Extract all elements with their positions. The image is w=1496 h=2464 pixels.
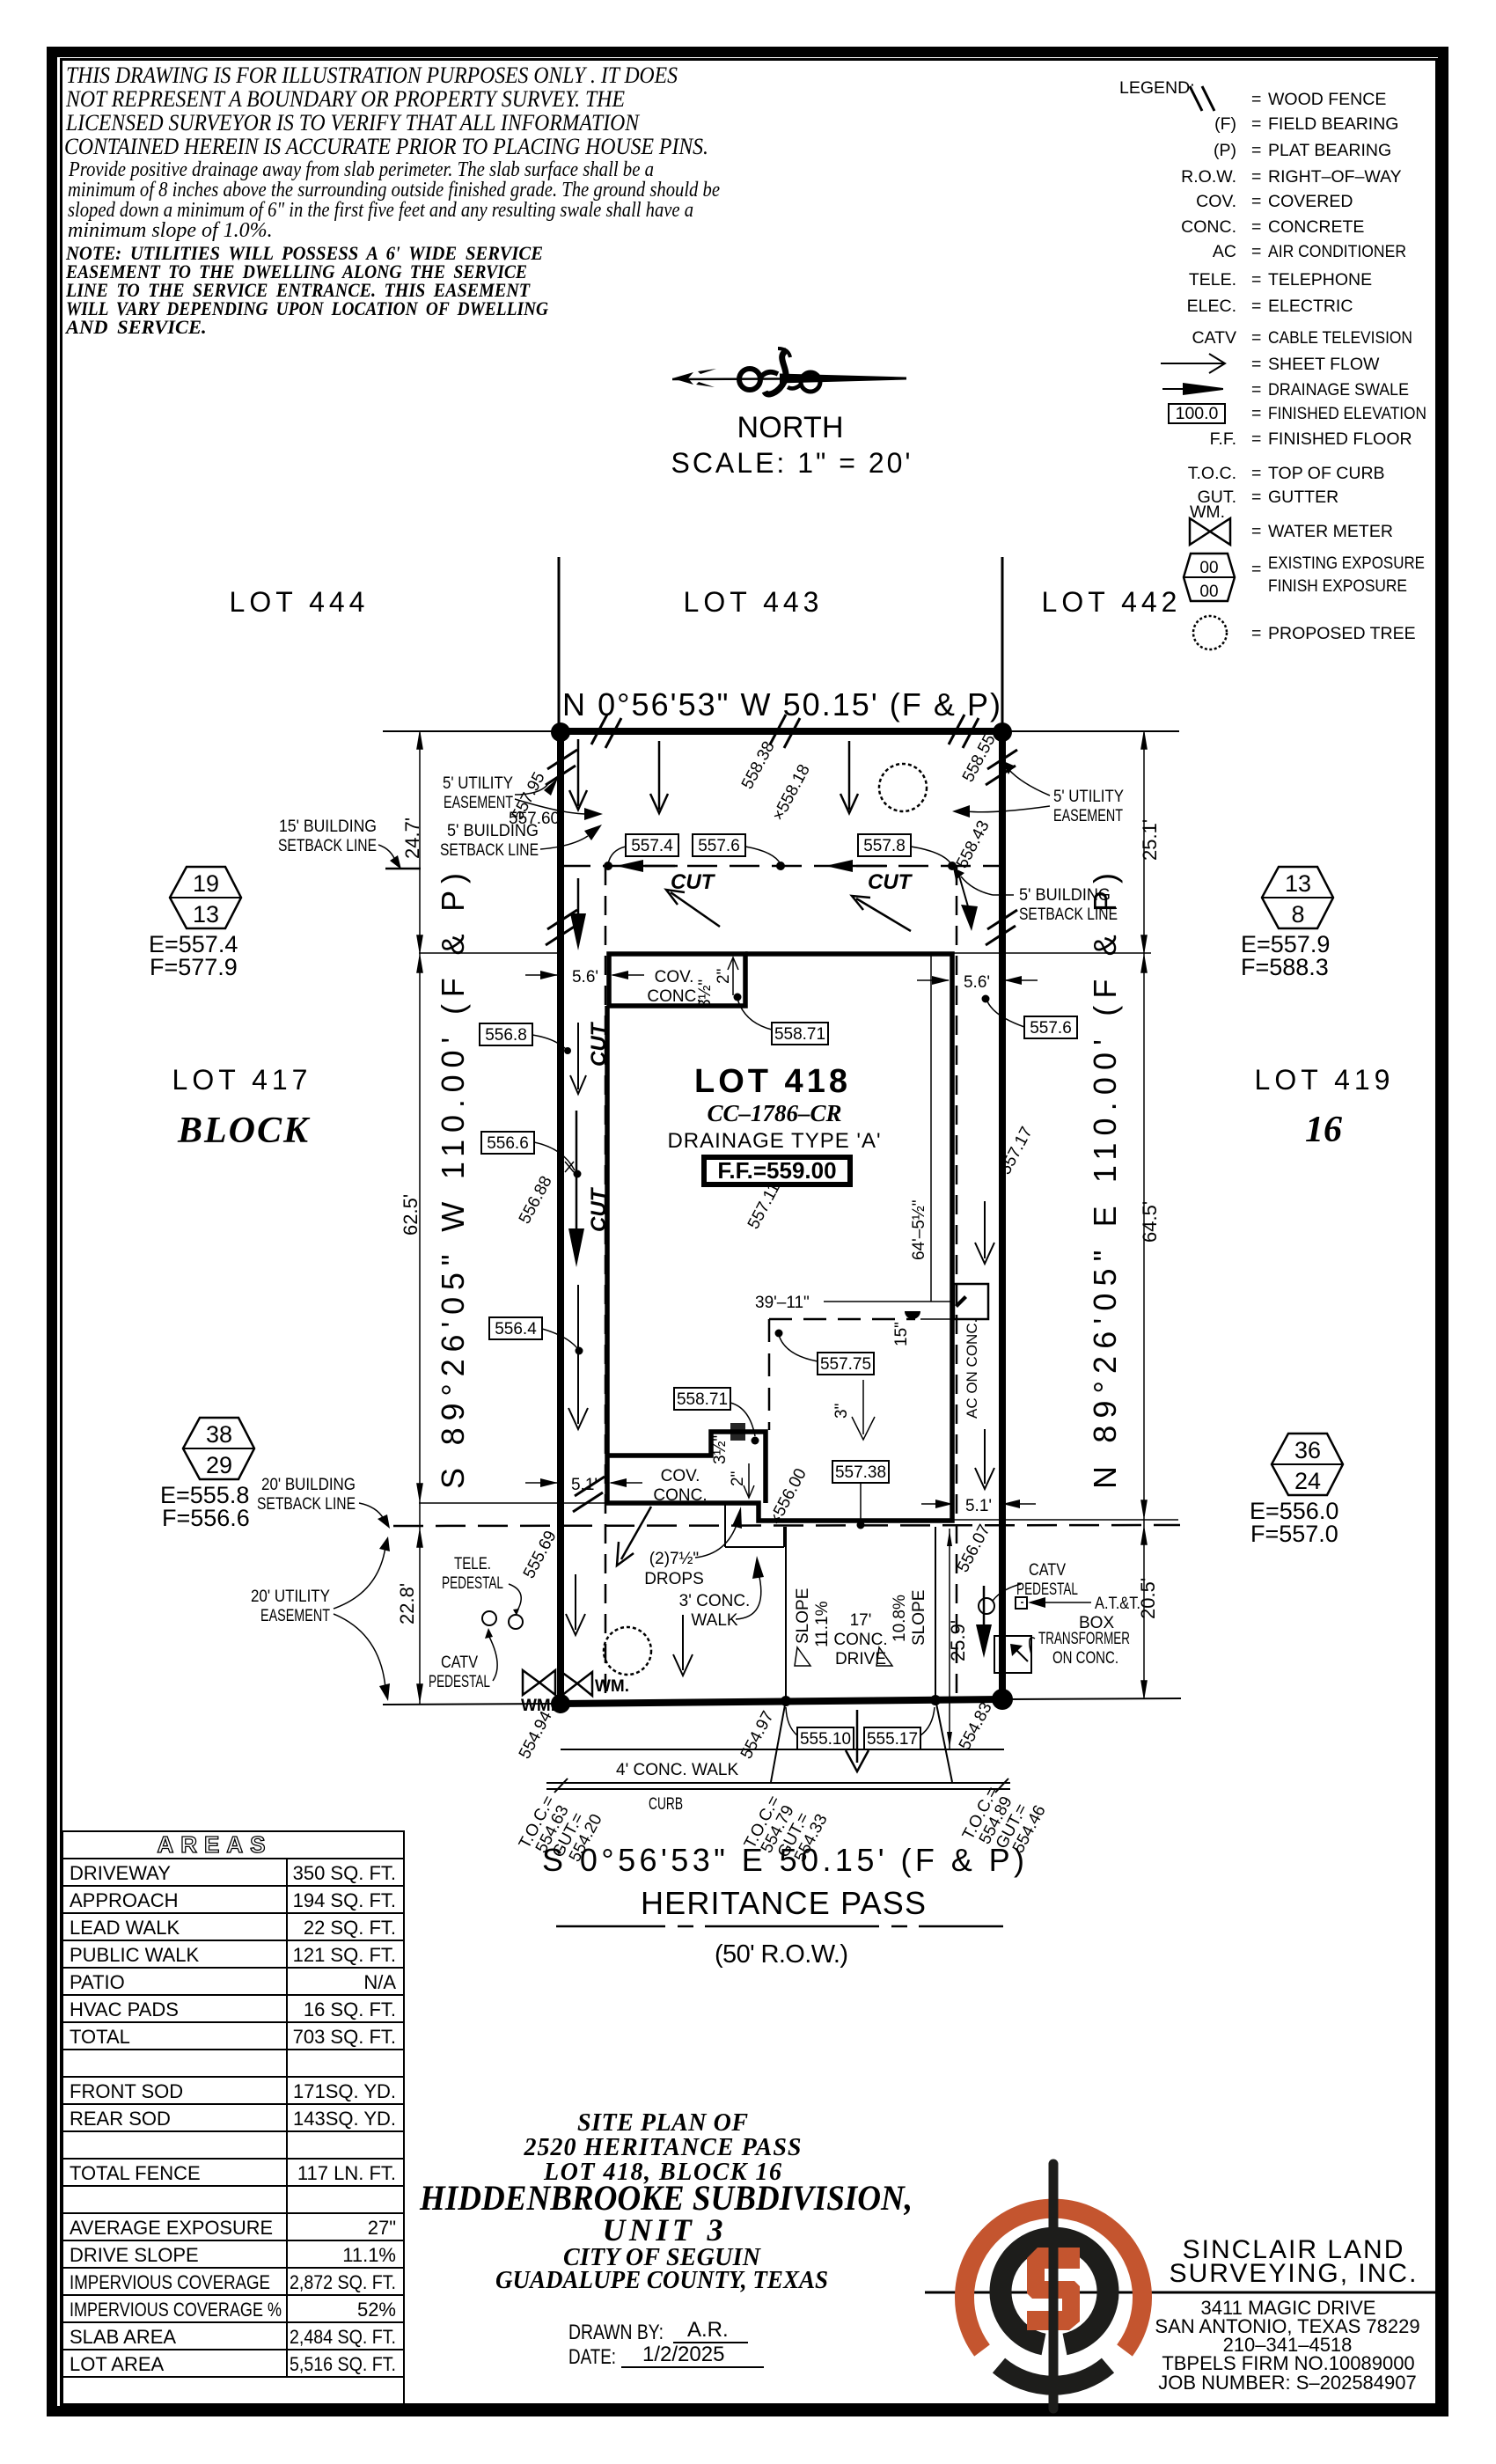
svg-text:FINISHED ELEVATION: FINISHED ELEVATION	[1268, 404, 1426, 423]
svg-text:556.4: 556.4	[495, 1320, 537, 1338]
svg-text:5' BUILDING: 5' BUILDING	[447, 822, 539, 840]
svg-text:TOP OF CURB: TOP OF CURB	[1268, 464, 1385, 483]
svg-text:ELEC.: ELEC.	[1187, 297, 1236, 316]
svg-text:3½": 3½"	[696, 979, 715, 1008]
svg-text:2,872 SQ. FT.: 2,872 SQ. FT.	[290, 2271, 396, 2293]
svg-text:SLAB AREA: SLAB AREA	[70, 2326, 176, 2348]
svg-text:DRIVEWAY: DRIVEWAY	[70, 1862, 171, 1884]
svg-text:COV.: COV.	[661, 1467, 700, 1485]
svg-text:2": 2"	[729, 1471, 747, 1486]
svg-text:SITE PLAN OF: SITE PLAN OF	[577, 2109, 748, 2137]
svg-text:39'–11": 39'–11"	[755, 1294, 810, 1312]
svg-text:IMPERVIOUS COVERAGE: IMPERVIOUS COVERAGE	[70, 2271, 270, 2293]
svg-text:CURB: CURB	[649, 1795, 683, 1814]
svg-text:SETBACK LINE: SETBACK LINE	[440, 841, 539, 860]
svg-text:29: 29	[206, 1452, 232, 1478]
svg-text:NOT REPRESENT A BOUNDARY OR PR: NOT REPRESENT A BOUNDARY OR PROPERTY SUR…	[65, 86, 625, 112]
svg-text:SETBACK LINE: SETBACK LINE	[257, 1495, 356, 1514]
svg-text:PLAT BEARING: PLAT BEARING	[1268, 141, 1391, 160]
svg-text:CATV: CATV	[1029, 1561, 1066, 1580]
svg-text:1/2/2025: 1/2/2025	[642, 2343, 724, 2366]
svg-text:3": 3"	[832, 1404, 851, 1419]
svg-text:HERITANCE PASS: HERITANCE PASS	[641, 1885, 926, 1921]
svg-text:13: 13	[193, 901, 219, 928]
svg-text:64'–5½": 64'–5½"	[910, 1200, 928, 1261]
svg-text:=: =	[1251, 328, 1261, 348]
svg-text:=: =	[1251, 270, 1261, 290]
svg-text:350 SQ. FT.: 350 SQ. FT.	[293, 1862, 396, 1884]
svg-text:17': 17'	[850, 1611, 872, 1630]
svg-text:GUTTER: GUTTER	[1268, 488, 1338, 507]
svg-text:LOT 419: LOT 419	[1255, 1064, 1395, 1096]
svg-text:100.0: 100.0	[1176, 404, 1219, 423]
svg-text:=: =	[1251, 560, 1261, 579]
svg-text:AVERAGE EXPOSURE: AVERAGE EXPOSURE	[70, 2217, 273, 2239]
svg-text:CONC.: CONC.	[653, 1486, 707, 1505]
svg-text:3' CONC.: 3' CONC.	[679, 1592, 751, 1610]
svg-text:WM.: WM.	[1190, 502, 1225, 522]
svg-text:DROPS: DROPS	[644, 1570, 704, 1588]
svg-text:5.6': 5.6'	[964, 973, 990, 992]
svg-text:=: =	[1251, 217, 1261, 237]
svg-text:DATE:: DATE:	[568, 2345, 616, 2369]
svg-text:AC: AC	[1213, 242, 1236, 261]
svg-text:CATV: CATV	[441, 1654, 478, 1672]
svg-text:5' UTILITY: 5' UTILITY	[443, 774, 513, 793]
svg-text:PATIO: PATIO	[70, 1971, 125, 1993]
svg-text:CUT: CUT	[587, 1021, 611, 1067]
svg-text:EASEMENT: EASEMENT	[444, 794, 513, 812]
svg-text:PEDESTAL: PEDESTAL	[442, 1574, 503, 1593]
svg-text:APPROACH: APPROACH	[70, 1889, 178, 1911]
svg-text:4' CONC. WALK: 4' CONC. WALK	[616, 1761, 738, 1779]
svg-text:F.F.: F.F.	[1210, 429, 1236, 449]
svg-text:=: =	[1251, 355, 1261, 374]
svg-text:16: 16	[1305, 1110, 1342, 1150]
svg-text:557.6: 557.6	[698, 837, 740, 855]
svg-text:13: 13	[1285, 870, 1311, 897]
svg-text:194 SQ. FT.: 194 SQ. FT.	[293, 1889, 396, 1911]
svg-text:A.R.: A.R.	[687, 2318, 729, 2342]
svg-text:5.1': 5.1'	[965, 1497, 992, 1515]
svg-text:(50' R.O.W.): (50' R.O.W.)	[715, 1940, 848, 1969]
svg-text:=: =	[1251, 242, 1261, 261]
svg-text:24.7': 24.7'	[401, 818, 423, 859]
svg-text:15' BUILDING: 15' BUILDING	[279, 818, 377, 836]
svg-text:WATER METER: WATER METER	[1268, 522, 1393, 541]
svg-text:171SQ. YD.: 171SQ. YD.	[293, 2080, 396, 2102]
svg-text:TELE.: TELE.	[454, 1555, 491, 1573]
svg-text:F=588.3: F=588.3	[1241, 954, 1329, 980]
svg-text:LEGEND:: LEGEND:	[1119, 78, 1195, 98]
svg-text:COV.: COV.	[655, 968, 694, 986]
svg-text:5' UTILITY: 5' UTILITY	[1053, 788, 1124, 806]
svg-text:minimum slope of 1.0%.: minimum slope of 1.0%.	[68, 219, 273, 242]
svg-text:555.17: 555.17	[867, 1730, 918, 1749]
svg-text:(2)7½": (2)7½"	[649, 1550, 699, 1568]
svg-text:38: 38	[206, 1421, 232, 1448]
svg-text:AND SERVICE.: AND SERVICE.	[64, 316, 207, 338]
svg-text:CABLE TELEVISION: CABLE TELEVISION	[1268, 328, 1412, 348]
svg-text:557.4: 557.4	[631, 837, 673, 855]
svg-text:FRONT SOD: FRONT SOD	[70, 2080, 183, 2102]
svg-text:HVAC PADS: HVAC PADS	[70, 1998, 179, 2020]
svg-text:=: =	[1251, 297, 1261, 316]
svg-text:27": 27"	[368, 2217, 396, 2239]
svg-text:FINISH EXPOSURE: FINISH EXPOSURE	[1268, 576, 1407, 596]
svg-text:36: 36	[1294, 1437, 1321, 1463]
svg-text:16 SQ. FT.: 16 SQ. FT.	[304, 1998, 396, 2020]
svg-text:AREAS: AREAS	[157, 1831, 272, 1858]
svg-text:EXISTING EXPOSURE: EXISTING EXPOSURE	[1268, 554, 1425, 573]
svg-text:WOOD FENCE: WOOD FENCE	[1268, 90, 1386, 109]
svg-text:COVERED: COVERED	[1268, 192, 1353, 211]
svg-text:LOT AREA: LOT AREA	[70, 2353, 165, 2375]
svg-text:DRIVE SLOPE: DRIVE SLOPE	[70, 2244, 199, 2266]
svg-text:TELE.: TELE.	[1189, 270, 1236, 290]
svg-text:ON CONC.: ON CONC.	[1052, 1649, 1118, 1668]
svg-text:PUBLIC WALK: PUBLIC WALK	[70, 1944, 199, 1966]
svg-text:CONCRETE: CONCRETE	[1268, 217, 1364, 237]
svg-text:TELEPHONE: TELEPHONE	[1268, 270, 1372, 290]
svg-text:CONTAINED HEREIN IS ACCURATE P: CONTAINED HEREIN IS ACCURATE PRIOR TO PL…	[64, 134, 708, 159]
svg-text:555.10: 555.10	[800, 1730, 851, 1749]
svg-text:CUT: CUT	[587, 1186, 611, 1232]
svg-text:8: 8	[1291, 901, 1304, 928]
svg-text:LOT 417: LOT 417	[172, 1064, 312, 1096]
svg-text:=: =	[1251, 380, 1261, 400]
svg-text:TOTAL FENCE: TOTAL FENCE	[70, 2162, 201, 2184]
svg-text:=: =	[1251, 141, 1261, 160]
svg-text:(P): (P)	[1214, 141, 1236, 160]
svg-text:PEDESTAL: PEDESTAL	[429, 1673, 490, 1691]
svg-text:CC–1786–CR: CC–1786–CR	[707, 1100, 841, 1126]
svg-text:=: =	[1251, 429, 1261, 449]
svg-text:WM.: WM.	[595, 1677, 629, 1696]
svg-text:F.F.=559.00: F.F.=559.00	[717, 1157, 836, 1184]
svg-text:143SQ. YD.: 143SQ. YD.	[293, 2108, 396, 2130]
svg-text:EASEMENT: EASEMENT	[260, 1607, 330, 1625]
svg-text:SETBACK LINE: SETBACK LINE	[278, 837, 377, 855]
svg-text:556.6: 556.6	[487, 1134, 529, 1153]
svg-text:WALK: WALK	[691, 1611, 737, 1630]
svg-text:COV.: COV.	[1196, 192, 1236, 211]
svg-text:20' UTILITY: 20' UTILITY	[251, 1588, 330, 1606]
svg-text:EASEMENT: EASEMENT	[1053, 807, 1123, 825]
svg-text:121 SQ. FT.: 121 SQ. FT.	[293, 1944, 396, 1966]
svg-text:RIGHT–OF–WAY: RIGHT–OF–WAY	[1268, 167, 1402, 187]
svg-text:117 LN. FT.: 117 LN. FT.	[297, 2162, 396, 2184]
svg-text:558.71: 558.71	[677, 1390, 728, 1409]
svg-text:CONC.: CONC.	[833, 1631, 887, 1649]
svg-text:20' BUILDING: 20' BUILDING	[261, 1476, 356, 1494]
svg-text:R.O.W.: R.O.W.	[1181, 167, 1236, 187]
svg-text:24: 24	[1294, 1468, 1321, 1494]
svg-text:LOT 442: LOT 442	[1042, 586, 1182, 618]
svg-text:CUT: CUT	[868, 870, 913, 894]
svg-text:DRAINAGE SWALE: DRAINAGE SWALE	[1268, 380, 1409, 400]
svg-text:THIS DRAWING IS FOR ILLUSTRATI: THIS DRAWING IS FOR ILLUSTRATION PURPOSE…	[66, 62, 678, 88]
svg-text:22.8': 22.8'	[396, 1583, 418, 1624]
svg-text:CATV: CATV	[1192, 328, 1236, 348]
svg-text:64.5': 64.5'	[1139, 1201, 1161, 1243]
svg-text:IMPERVIOUS COVERAGE %: IMPERVIOUS COVERAGE %	[70, 2299, 282, 2321]
svg-text:2520 HERITANCE PASS: 2520 HERITANCE PASS	[524, 2134, 802, 2161]
svg-text:N/A: N/A	[363, 1971, 396, 1993]
svg-text:11.1%: 11.1%	[342, 2244, 396, 2266]
svg-text:5' BUILDING: 5' BUILDING	[1019, 886, 1111, 905]
svg-text:=: =	[1251, 90, 1261, 109]
svg-text:557.6: 557.6	[1030, 1019, 1072, 1038]
svg-text:=: =	[1251, 624, 1261, 643]
svg-text:3½": 3½"	[711, 1435, 730, 1464]
svg-text:F=577.9: F=577.9	[150, 954, 238, 980]
svg-text:22 SQ. FT.: 22 SQ. FT.	[304, 1917, 396, 1939]
svg-text:=: =	[1251, 114, 1261, 134]
svg-text:=: =	[1251, 522, 1261, 541]
svg-text:558.71: 558.71	[774, 1025, 825, 1044]
svg-text:F=556.6: F=556.6	[162, 1505, 250, 1531]
svg-text:2": 2"	[715, 969, 733, 984]
svg-text:5.1': 5.1'	[571, 1476, 598, 1494]
svg-text:SLOPE: SLOPE	[794, 1588, 812, 1644]
svg-text:LOT 443: LOT 443	[684, 586, 824, 618]
svg-text:LOT 444: LOT 444	[230, 586, 370, 618]
svg-text:DRAWN BY:: DRAWN BY:	[568, 2321, 664, 2344]
svg-text:25.1': 25.1'	[1139, 819, 1161, 861]
svg-text:PEDESTAL: PEDESTAL	[1016, 1580, 1078, 1599]
svg-text:JOB NUMBER: S–202584907: JOB NUMBER: S–202584907	[1158, 2372, 1417, 2394]
svg-text:BLOCK: BLOCK	[177, 1111, 311, 1151]
svg-text:5.6': 5.6'	[572, 968, 598, 986]
svg-text:A.T.&T.: A.T.&T.	[1095, 1595, 1140, 1613]
svg-text:AC ON CONC.: AC ON CONC.	[964, 1319, 980, 1419]
svg-text:00: 00	[1199, 559, 1218, 577]
svg-text:(F): (F)	[1214, 114, 1236, 134]
svg-text:F=557.0: F=557.0	[1250, 1521, 1338, 1547]
svg-text:SETBACK LINE: SETBACK LINE	[1019, 906, 1118, 924]
svg-text:FINISHED FLOOR: FINISHED FLOOR	[1268, 429, 1412, 449]
svg-text:19: 19	[193, 870, 219, 897]
svg-text:NORTH: NORTH	[737, 411, 844, 444]
svg-text:SCALE: 1" = 20': SCALE: 1" = 20'	[671, 447, 913, 479]
svg-text:10.8%: 10.8%	[891, 1595, 909, 1642]
svg-text:25.9': 25.9'	[947, 1620, 969, 1661]
svg-text:703 SQ. FT.: 703 SQ. FT.	[293, 2026, 396, 2048]
svg-text:TOTAL: TOTAL	[70, 2026, 130, 2048]
svg-text:GUADALUPE COUNTY, TEXAS: GUADALUPE COUNTY, TEXAS	[495, 2267, 828, 2294]
svg-text:PROPOSED TREE: PROPOSED TREE	[1268, 624, 1416, 643]
svg-text:15": 15"	[892, 1322, 911, 1346]
svg-text:=: =	[1251, 488, 1261, 507]
svg-text:SHEET FLOW: SHEET FLOW	[1268, 355, 1380, 374]
svg-text:62.5': 62.5'	[400, 1194, 422, 1236]
svg-text:LEAD WALK: LEAD WALK	[70, 1917, 180, 1939]
svg-text:TRANSFORMER: TRANSFORMER	[1038, 1630, 1130, 1648]
svg-text:11.1%: 11.1%	[813, 1601, 832, 1647]
svg-text:CONC.: CONC.	[647, 987, 700, 1006]
svg-text:LOT 418: LOT 418	[694, 1063, 851, 1100]
svg-text:52%: 52%	[357, 2299, 396, 2321]
svg-text:2,484 SQ. FT.: 2,484 SQ. FT.	[290, 2326, 396, 2348]
svg-text:SLOPE: SLOPE	[910, 1590, 928, 1646]
svg-text:557.8: 557.8	[863, 837, 906, 855]
svg-text:LICENSED SURVEYOR IS TO VERIFY: LICENSED SURVEYOR IS TO VERIFY THAT ALL …	[65, 110, 640, 136]
svg-text:00: 00	[1199, 583, 1218, 601]
svg-text:SURVEYING, INC.: SURVEYING, INC.	[1170, 2259, 1419, 2288]
svg-text:556.8: 556.8	[485, 1026, 527, 1045]
svg-text:=: =	[1251, 167, 1261, 187]
svg-text:AIR CONDITIONER: AIR CONDITIONER	[1268, 242, 1406, 261]
svg-text:557.75: 557.75	[820, 1355, 871, 1374]
svg-text:ELECTRIC: ELECTRIC	[1268, 297, 1353, 316]
svg-text:REAR SOD: REAR SOD	[70, 2108, 171, 2130]
svg-text:DRAINAGE TYPE 'A': DRAINAGE TYPE 'A'	[667, 1129, 881, 1153]
svg-text:T.O.C.: T.O.C.	[1188, 464, 1236, 483]
svg-text:FIELD BEARING: FIELD BEARING	[1268, 114, 1398, 134]
svg-text:557.38: 557.38	[835, 1463, 886, 1482]
svg-text:CONC.: CONC.	[1181, 217, 1236, 237]
svg-text:=: =	[1251, 464, 1261, 483]
svg-text:5,516 SQ. FT.: 5,516 SQ. FT.	[290, 2353, 396, 2375]
svg-text:=: =	[1251, 404, 1261, 423]
svg-text:=: =	[1251, 192, 1261, 211]
